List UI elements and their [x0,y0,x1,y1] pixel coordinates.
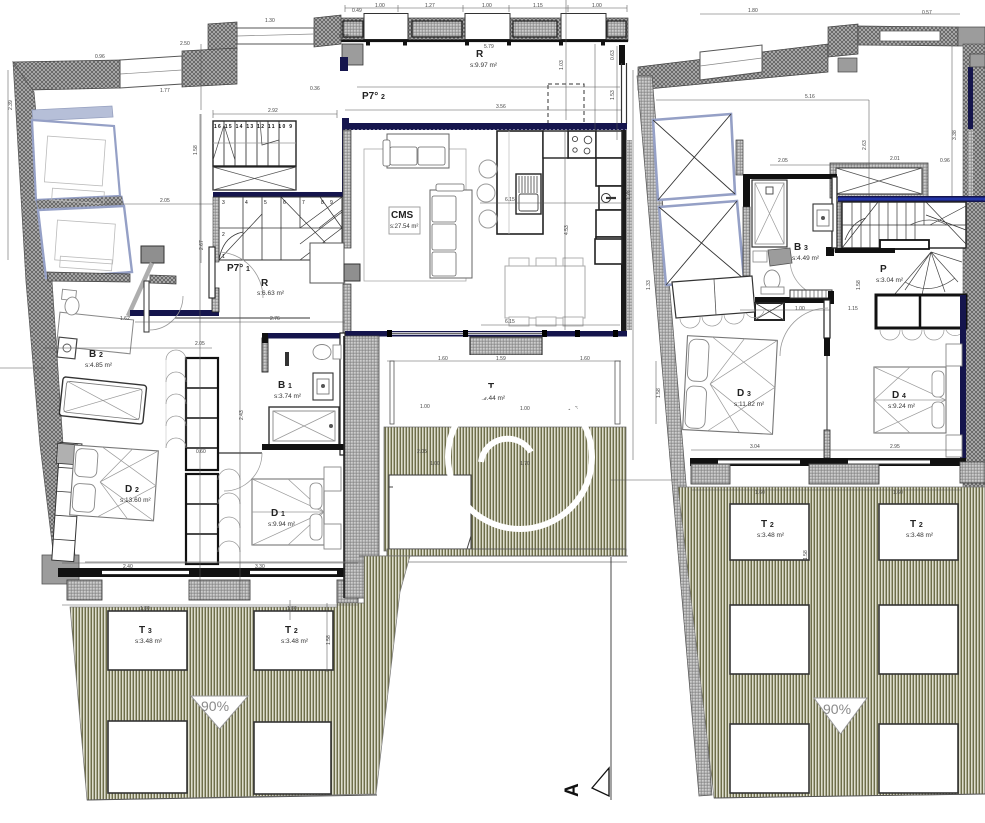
svg-text:1.00: 1.00 [420,404,430,410]
svg-text:1.30: 1.30 [265,18,275,24]
svg-text:s:27.54 m²: s:27.54 m² [390,224,418,230]
svg-text:2.95: 2.95 [890,444,900,450]
svg-text:s:6.63 m²: s:6.63 m² [257,290,285,297]
svg-text:CMS: CMS [391,210,414,221]
svg-text:1.58: 1.58 [856,280,862,290]
svg-text:0.63: 0.63 [610,50,616,60]
svg-text:2.01: 2.01 [890,156,900,162]
svg-text:s:9.97 m²: s:9.97 m² [470,62,498,69]
svg-text:4.53: 4.53 [564,225,570,235]
svg-text:2.67: 2.67 [199,240,205,250]
svg-text:1.58: 1.58 [656,388,662,398]
svg-text:9: 9 [330,200,333,206]
svg-text:3.04: 3.04 [750,444,760,450]
svg-text:R: R [261,278,269,289]
svg-text:2.39: 2.39 [8,100,14,110]
svg-text:1.60: 1.60 [438,356,448,362]
svg-text:2: 2 [222,232,225,238]
svg-text:4: 4 [245,200,248,206]
svg-text:1.70: 1.70 [520,461,530,467]
svg-text:2.05: 2.05 [417,449,427,455]
svg-text:6: 6 [283,200,286,206]
svg-text:1.60: 1.60 [755,490,765,496]
svg-text:0.36: 0.36 [310,86,320,92]
svg-text:5.16: 5.16 [805,94,815,100]
svg-text:1.26: 1.26 [626,190,632,200]
svg-text:s:3.48 m²: s:3.48 m² [757,532,785,539]
svg-text:6.15: 6.15 [505,319,515,325]
svg-text:1.00: 1.00 [520,406,530,412]
svg-text:3.56: 3.56 [496,104,506,110]
svg-text:1.59: 1.59 [496,356,506,362]
svg-text:2.43: 2.43 [239,410,245,420]
svg-text:1.15: 1.15 [533,3,543,9]
svg-text:A: A [562,783,583,797]
svg-text:7: 7 [302,200,305,206]
svg-text:1.00: 1.00 [375,3,385,9]
svg-text:s:13.60 m²: s:13.60 m² [120,497,152,504]
svg-text:1.62: 1.62 [120,316,130,322]
svg-text:3: 3 [222,200,225,206]
svg-text:3.38: 3.38 [952,130,958,140]
svg-text:0.96: 0.96 [940,158,950,164]
svg-text:1.60: 1.60 [580,356,590,362]
svg-text:s:3.04 m²: s:3.04 m² [876,277,904,284]
svg-text:1.58: 1.58 [326,635,332,645]
svg-text:5.79: 5.79 [484,44,494,50]
svg-text:2.92: 2.92 [268,108,278,114]
svg-text:1.58: 1.58 [193,145,199,155]
svg-text:1.33: 1.33 [646,280,652,290]
svg-text:1.77: 1.77 [160,88,170,94]
svg-text:1.58: 1.58 [803,550,809,560]
svg-text:1: 1 [222,254,225,260]
svg-text:2.05: 2.05 [160,198,170,204]
svg-text:s:3.74 m²: s:3.74 m² [274,393,302,400]
svg-text:0.96: 0.96 [95,54,105,60]
svg-text:0.49: 0.49 [352,8,362,14]
svg-text:R: R [476,49,484,60]
svg-text:1.53: 1.53 [610,90,616,100]
svg-text:1.80: 1.80 [140,606,150,612]
svg-text:1.60: 1.60 [893,490,903,496]
svg-text:0.58: 0.58 [339,34,349,40]
svg-text:2.05: 2.05 [195,341,205,347]
svg-text:s:3.48 m²: s:3.48 m² [281,638,309,645]
svg-text:1.00: 1.00 [795,306,805,312]
svg-text:2.40: 2.40 [123,564,133,570]
svg-text:s:9.24 m²: s:9.24 m² [888,403,916,410]
svg-text:6.15: 6.15 [505,197,515,203]
svg-text:8: 8 [321,200,324,206]
svg-text:1.03: 1.03 [559,60,565,70]
svg-text:2.05: 2.05 [778,158,788,164]
svg-text:90%: 90% [823,701,851,717]
svg-text:2.63: 2.63 [862,140,868,150]
svg-text:1.00: 1.00 [482,3,492,9]
svg-text:1.80: 1.80 [287,606,297,612]
svg-text:P: P [880,264,887,275]
svg-text:s:4.49 m²: s:4.49 m² [792,255,820,262]
svg-text:1.00: 1.00 [592,3,602,9]
svg-text:5: 5 [264,200,267,206]
svg-text:16 15 14 13 12 11 10 9: 16 15 14 13 12 11 10 9 [214,124,292,130]
svg-text:1.80: 1.80 [748,8,758,14]
svg-text:s:11.82 m²: s:11.82 m² [734,401,765,408]
svg-text:1.15: 1.15 [848,306,858,312]
svg-text:1.00: 1.00 [430,461,440,467]
svg-text:1.27: 1.27 [425,3,435,9]
svg-text:0.60: 0.60 [196,449,206,455]
svg-text:s:3.48 m²: s:3.48 m² [135,638,163,645]
svg-text:2.50: 2.50 [180,41,190,47]
svg-text:s:9.94 m²: s:9.94 m² [268,521,296,528]
svg-text:2.76: 2.76 [270,316,280,322]
svg-text:s:3.48 m²: s:3.48 m² [906,532,934,539]
svg-text:0.57: 0.57 [922,10,932,16]
svg-text:3.30: 3.30 [255,564,265,570]
svg-text:90%: 90% [201,698,229,714]
svg-text:s:4.85 m²: s:4.85 m² [85,362,113,369]
